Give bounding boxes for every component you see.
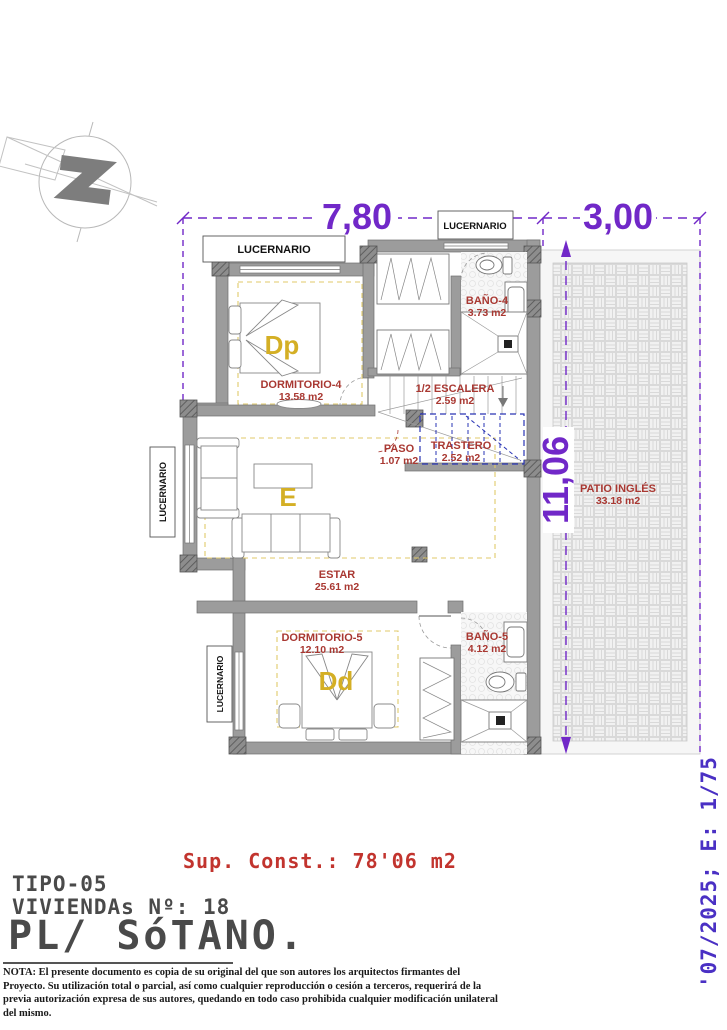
room-name: TRASTERO: [431, 440, 492, 452]
room-name: BAÑO-4: [466, 294, 509, 307]
tipo-label: TIPO-05: [12, 872, 108, 896]
room-name: 1/2 ESCALERA: [416, 383, 495, 395]
dimension-top-main: 7,80: [322, 196, 392, 237]
room-name: DORMITORIO-4: [260, 379, 342, 391]
planta-title: PL/ SóTANO.: [8, 913, 306, 959]
room-area: 12.10 m2: [300, 644, 345, 656]
room-letter: Dp: [265, 330, 300, 360]
room-area: 33.18 m2: [596, 495, 641, 507]
lucernario-label: LUCERNARIO: [215, 655, 225, 712]
room-letter: Dd: [319, 666, 354, 696]
lucernario-label: LUCERNARIO: [158, 462, 168, 522]
lucernario-label: LUCERNARIO: [237, 244, 311, 256]
room-area: 13.58 m2: [279, 391, 324, 403]
wardrobes: [377, 254, 454, 740]
title-rule: [3, 962, 233, 964]
room-area: 3.73 m2: [468, 307, 507, 319]
door-arc: [419, 616, 451, 648]
stair-direction-arrow: [498, 398, 508, 407]
date-scale-label: '07/2025; E: 1/75: [697, 756, 721, 988]
room-area: 2.59 m2: [436, 395, 475, 407]
room-name: PATIO INGLÉS: [580, 482, 656, 495]
room-letter: E: [279, 482, 296, 512]
door-arc: [340, 377, 368, 405]
room-name: DORMITORIO-5: [281, 632, 362, 644]
room-paso: PASO 1.07 m2: [376, 430, 418, 467]
copyright-note: NOTA: El presente documento es copia de …: [3, 966, 501, 1021]
dimension-side-height: 11,06: [535, 436, 576, 524]
sup-const-label: Sup. Const.: 78'06 m2: [183, 849, 457, 873]
room-area: 2.52 m2: [442, 452, 481, 464]
dimension-top-patio: 3,00: [583, 196, 653, 237]
floor-plan-canvas: 7,80 3,00 11,06: [0, 0, 727, 1030]
room-name: ESTAR: [319, 569, 356, 581]
room-name: PASO: [384, 443, 415, 455]
room-area: 25.61 m2: [315, 581, 360, 593]
shower-drain: [496, 716, 505, 725]
room-bano5: BAÑO-5 4.12 m2: [461, 612, 527, 754]
room-dormitorio4: Dp DORMITORIO-4 13.58 m2: [229, 300, 368, 409]
room-name: BAÑO-5: [466, 630, 508, 643]
north-arrow-icon: [0, 122, 157, 242]
lucernario-label: LUCERNARIO: [443, 221, 506, 232]
room-area: 1.07 m2: [380, 455, 419, 467]
room-bano4: BAÑO-4 3.73 m2: [461, 252, 527, 374]
room-area: 4.12 m2: [468, 643, 507, 655]
shower-drain: [504, 340, 512, 348]
